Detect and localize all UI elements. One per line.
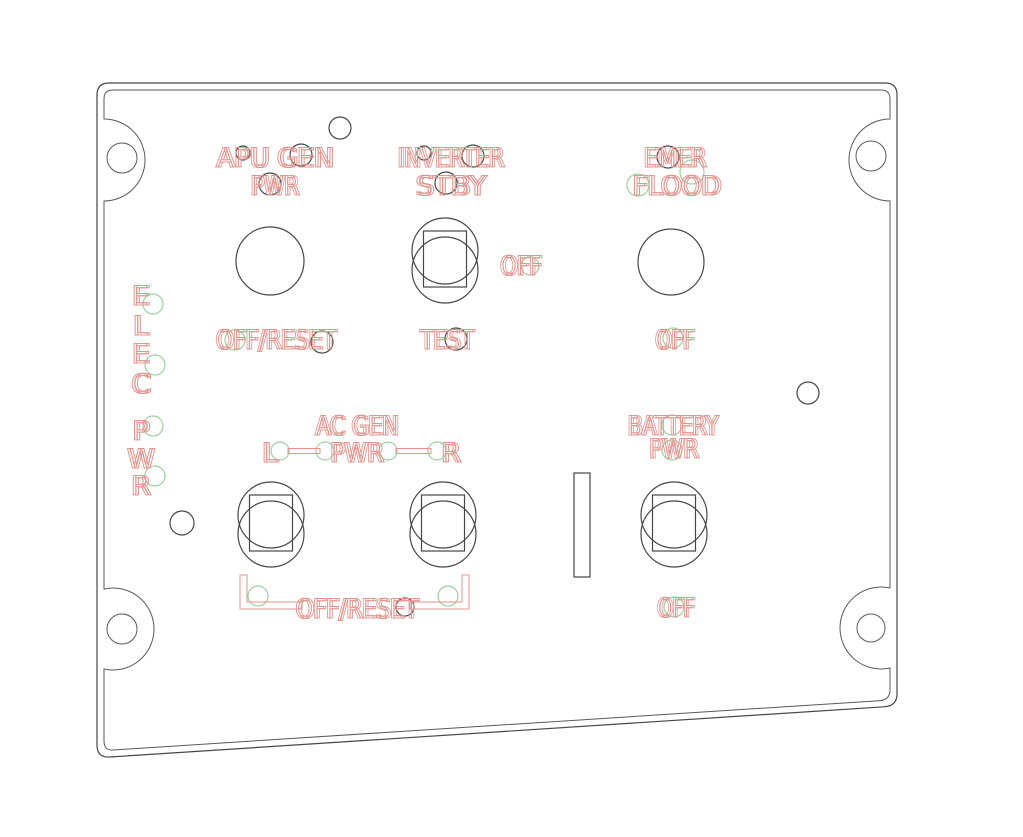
engraved-text-ghost: E (134, 339, 151, 370)
panel-cutlines (97, 83, 897, 757)
engraved-text-ghost: STBY (418, 171, 489, 202)
engraved-text-ghost: PWR (651, 434, 700, 465)
engraved-text-ghost: EMER (646, 143, 708, 174)
engraved-text-ghost: OFF (659, 593, 696, 624)
battery-switch-cutout (641, 482, 707, 567)
inverter-switch-cutout (412, 218, 478, 303)
switch-round-hole (641, 501, 707, 567)
panel-outer-outline (97, 83, 897, 757)
screw-hole-bottom-left (107, 614, 137, 644)
engraved-shapes (240, 449, 469, 610)
engraved-text-ghost: OFF/RESET (218, 325, 338, 356)
engraved-text-ghost: TEST (421, 325, 475, 356)
engraved-text-ghost: R (133, 471, 152, 502)
pilot-hole-left (170, 511, 194, 535)
side-legend-pwr: P W R PWR (127, 416, 156, 502)
ac-gen-tie-bar-right (396, 449, 431, 454)
cad-panel-drawing: APU GEN PWR INVERTER STBY EMER FLOOD OFF… (0, 0, 1023, 837)
engraved-text-ghost: OFF (502, 251, 543, 282)
switch-round-hole (410, 501, 476, 567)
ac-gen-left-switch-cutout (238, 482, 304, 567)
apu-gen-knob-cutout (236, 227, 304, 295)
pilot-hole-top (329, 117, 351, 139)
screw-hole-top-right (856, 141, 886, 171)
engraved-text-ghost: OFF (657, 325, 696, 356)
side-legend-elec: E L E C ELEC (131, 281, 152, 400)
switch-round-hole (238, 482, 304, 548)
engraved-text-ghost: P (134, 416, 150, 447)
pilot-hole-right (797, 382, 819, 404)
engraved-text-ghost: E (134, 281, 151, 312)
switch-guard-slot (653, 495, 696, 551)
led-hole (438, 586, 458, 606)
switch-round-hole (238, 501, 304, 567)
engraved-labels: APU GEN PWR INVERTER STBY EMER FLOOD OFF… (127, 143, 723, 625)
engraved-text-ghost: C (133, 369, 152, 400)
engraved-text-ghost: PWR (253, 171, 301, 202)
screw-hole-bottom-right (857, 614, 885, 642)
switch-round-hole (412, 237, 478, 303)
engraved-text-ghost: OFF/RESET (298, 594, 420, 625)
engraved-text-ghost: L (264, 438, 279, 469)
led-marker-holes (143, 160, 704, 617)
engraved-text-ghost: L (135, 311, 150, 342)
panel-inner-outline (104, 90, 890, 750)
ac-gen-tie-bar-left (288, 449, 320, 454)
engraved-text-ghost: APU GEN (218, 143, 335, 174)
switch-guard-slot (424, 231, 467, 287)
switch-guard-slot (422, 495, 465, 551)
switch-round-hole (412, 218, 478, 284)
lightplate-slot (574, 473, 590, 577)
elec-pwr-panel-svg: APU GEN PWR INVERTER STBY EMER FLOOD OFF… (0, 0, 1023, 837)
switch-round-hole (641, 482, 707, 548)
switch-round-hole (410, 482, 476, 548)
engraved-text-ghost: INVERTER (400, 143, 506, 174)
engraved-text-ghost: FLOOD (635, 171, 723, 202)
led-hole (248, 586, 268, 606)
emer-flood-knob-cutout (638, 229, 704, 295)
engraved-text-ghost: R (443, 438, 462, 469)
switch-guard-slot (250, 495, 293, 551)
screw-hole-top-left (107, 143, 137, 173)
engraved-text-ghost: PWR (332, 438, 385, 469)
ac-gen-right-switch-cutout (410, 482, 476, 567)
